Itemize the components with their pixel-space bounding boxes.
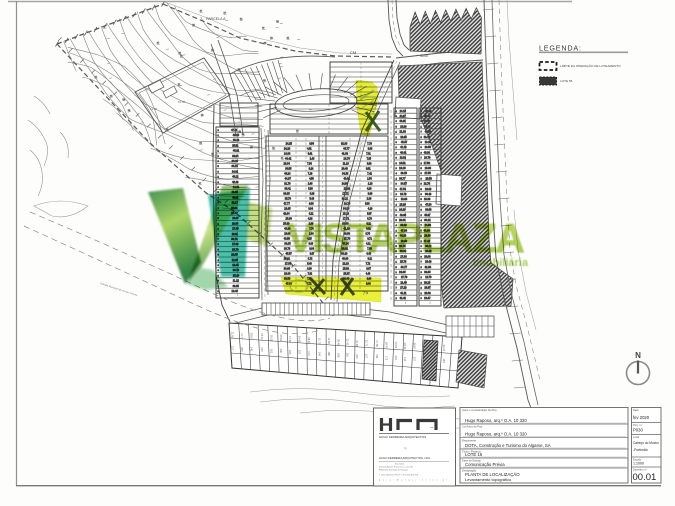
svg-text:45.37: 45.37 (401, 141, 408, 144)
svg-text:13.32: 13.32 (400, 157, 407, 160)
svg-text:1.54: 1.54 (367, 178, 372, 180)
svg-text:188: 188 (327, 351, 331, 356)
svg-text:11.10: 11.10 (343, 162, 350, 165)
svg-text:15.23: 15.23 (233, 139, 240, 142)
svg-text:30.34: 30.34 (442, 344, 446, 351)
svg-text:146: 146 (250, 347, 254, 352)
svg-text:7.54: 7.54 (307, 163, 312, 165)
svg-text:CM: CM (350, 50, 356, 55)
svg-text:27.56: 27.56 (285, 262, 292, 265)
svg-text:8.99: 8.99 (368, 193, 373, 195)
svg-text:44.42: 44.42 (285, 157, 292, 160)
svg-text:11.22: 11.22 (233, 280, 240, 283)
svg-text:15.40: 15.40 (424, 120, 431, 123)
svg-text:36.41: 36.41 (285, 187, 292, 190)
svg-text:36.85: 36.85 (233, 285, 240, 288)
svg-text:24.25: 24.25 (286, 142, 293, 145)
svg-text:205: 205 (240, 347, 244, 352)
svg-text:23.80: 23.80 (401, 198, 408, 201)
svg-text:35.70: 35.70 (285, 197, 292, 200)
svg-text:8.66: 8.66 (309, 203, 314, 205)
svg-text:14.98: 14.98 (284, 152, 291, 155)
svg-text:46.31: 46.31 (233, 150, 240, 153)
svg-text:Requerente: Requerente (462, 438, 477, 442)
svg-text:Levantamento topográfico: Levantamento topográfico (465, 477, 512, 482)
svg-text:Proj. n.º: Proj. n.º (633, 423, 642, 427)
svg-text:140: 140 (318, 352, 322, 357)
svg-text:24.42: 24.42 (298, 336, 302, 343)
svg-text:7.85: 7.85 (367, 158, 372, 160)
svg-text:3.69: 3.69 (367, 163, 372, 165)
svg-text:46.24: 46.24 (284, 172, 291, 175)
svg-text:44.59: 44.59 (425, 131, 432, 134)
svg-text:27.73: 27.73 (401, 276, 408, 279)
svg-text:28.48: 28.48 (336, 339, 340, 346)
svg-text:Autor e Coordenador do Proj.: Autor e Coordenador do Proj. (462, 408, 497, 412)
svg-text:17.59: 17.59 (424, 162, 431, 165)
svg-text:35.97: 35.97 (424, 115, 431, 118)
svg-text:12.79: 12.79 (425, 276, 432, 279)
svg-text:44.87: 44.87 (285, 177, 292, 180)
svg-text:HUGO FERREIRA ARQUITECTOS: HUGO FERREIRA ARQUITECTOS (379, 435, 426, 439)
svg-text:25.58: 25.58 (426, 177, 433, 180)
svg-text:24.86: 24.86 (399, 271, 406, 274)
svg-text:22.10: 22.10 (343, 262, 350, 265)
svg-text:38.69: 38.69 (307, 337, 311, 344)
svg-text:39.87: 39.87 (413, 343, 417, 350)
svg-text:34.57: 34.57 (401, 183, 408, 186)
svg-text:29.10: 29.10 (401, 172, 408, 175)
svg-text:7.31: 7.31 (366, 153, 371, 155)
svg-text:27.53: 27.53 (425, 172, 432, 175)
svg-text:14.05: 14.05 (150, 107, 157, 111)
svg-text:17.72: 17.72 (342, 192, 349, 195)
svg-text:4.19: 4.19 (368, 208, 373, 210)
svg-text:201: 201 (394, 356, 398, 361)
svg-text:19.63: 19.63 (425, 167, 432, 170)
svg-text:46.12: 46.12 (232, 176, 239, 179)
svg-text:18.11: 18.11 (403, 343, 407, 350)
svg-text:8.67: 8.67 (366, 268, 371, 270)
svg-text:35.16: 35.16 (232, 165, 239, 168)
svg-text:28.97: 28.97 (250, 333, 254, 340)
svg-text:LIMITE DA OPERAÇÃO DE LOTEAMEN: LIMITE DA OPERAÇÃO DE LOTEAMENTO (560, 63, 621, 68)
svg-text:36.77: 36.77 (399, 177, 406, 180)
svg-text:150: 150 (355, 354, 359, 359)
svg-text:5.83: 5.83 (365, 203, 370, 205)
svg-text:00.01: 00.01 (633, 472, 657, 483)
svg-text:PLANTA DE LOCALIZAÇÃO: PLANTA DE LOCALIZAÇÃO (465, 472, 520, 477)
svg-text:34.35: 34.35 (342, 172, 349, 175)
svg-text:34.50: 34.50 (343, 207, 350, 210)
svg-text:44.77: 44.77 (343, 147, 350, 150)
svg-text:27.23: 27.23 (400, 287, 407, 290)
svg-text:Hugo Raposo, arq.º O.A. 10 320: Hugo Raposo, arq.º O.A. 10 320 (465, 418, 527, 423)
svg-text:Co-Autor do Proj.: Co-Autor do Proj. (462, 425, 483, 429)
svg-text:26.48: 26.48 (342, 167, 349, 170)
svg-text:12.66: 12.66 (327, 337, 331, 344)
svg-text:18.08: 18.08 (425, 188, 432, 191)
svg-text:42.33: 42.33 (232, 181, 239, 184)
svg-text:7.72: 7.72 (366, 263, 371, 265)
svg-text:22.76: 22.76 (424, 183, 431, 186)
svg-text:21.38: 21.38 (400, 131, 407, 134)
svg-text:Cabeço do Mocho: Cabeço do Mocho (633, 441, 659, 445)
svg-text:25.84: 25.84 (279, 335, 283, 342)
svg-text:PARCELA A: PARCELA A (206, 17, 226, 21)
svg-text:173: 173 (307, 351, 311, 356)
svg-text:-Portimão: -Portimão (633, 448, 648, 452)
svg-text:3.88: 3.88 (310, 193, 315, 195)
svg-text:164: 164 (442, 358, 446, 363)
svg-text:22.71: 22.71 (365, 340, 369, 347)
svg-text:31.41: 31.41 (400, 297, 407, 300)
svg-text:P030: P030 (633, 428, 643, 433)
svg-text:VISTAPLAZA: VISTAPLAZA (287, 215, 524, 261)
svg-text:17.77: 17.77 (240, 333, 244, 340)
svg-text:16.24: 16.24 (400, 125, 407, 128)
svg-text:43.46: 43.46 (424, 136, 431, 139)
svg-text:32.38: 32.38 (341, 142, 348, 145)
svg-text:15.60: 15.60 (178, 100, 185, 104)
svg-text:16.97: 16.97 (424, 287, 431, 290)
svg-text:48.30: 48.30 (424, 151, 431, 154)
svg-text:10.70: 10.70 (424, 157, 431, 160)
svg-text:19.90: 19.90 (284, 272, 291, 275)
svg-text:9.61: 9.61 (308, 153, 313, 155)
svg-text:44.97: 44.97 (400, 115, 407, 118)
svg-text:14.01: 14.01 (232, 170, 239, 173)
svg-text:Estrada Monte Francisco, Lt 14: Estrada Monte Francisco, Lt 14 3B (379, 466, 413, 469)
svg-text:8.54: 8.54 (309, 143, 314, 145)
svg-text:7.78: 7.78 (367, 143, 372, 145)
svg-text:32.42: 32.42 (346, 339, 350, 346)
svg-text:15.76: 15.76 (400, 261, 407, 264)
svg-text:165: 165 (288, 350, 292, 355)
svg-text:102: 102 (298, 350, 302, 355)
svg-text:31.79: 31.79 (318, 338, 322, 345)
svg-text:Desenho n.º: Desenho n.º (633, 467, 647, 471)
svg-text:13.78: 13.78 (400, 193, 407, 196)
svg-text:15.37: 15.37 (343, 272, 350, 275)
svg-text:31.79: 31.79 (284, 182, 291, 185)
svg-text:Escritório:: Escritório: (395, 463, 405, 466)
svg-text:LEGENDA:: LEGENDA: (539, 44, 582, 53)
svg-text:15.20: 15.20 (400, 203, 407, 206)
svg-text:30.0E: 30.0E (420, 54, 428, 58)
svg-text:136: 136 (279, 349, 283, 354)
svg-text:Comunicação Prévia: Comunicação Prévia (465, 462, 505, 467)
svg-text:47.77: 47.77 (284, 202, 291, 205)
svg-text:35.65: 35.65 (424, 125, 431, 128)
svg-text:13.19: 13.19 (399, 167, 406, 170)
svg-text:LOTE 16: LOTE 16 (465, 452, 483, 457)
svg-text:LOTE 56: LOTE 56 (560, 79, 573, 83)
svg-text:4.56: 4.56 (309, 178, 314, 180)
svg-text:41.11: 41.11 (400, 292, 407, 295)
svg-text:36.84: 36.84 (232, 155, 239, 158)
svg-text:28.47: 28.47 (384, 342, 388, 349)
svg-text:7.42: 7.42 (367, 173, 372, 175)
svg-text:17.69: 17.69 (288, 336, 292, 343)
svg-text:7.62: 7.62 (308, 273, 313, 275)
svg-text:26.43: 26.43 (425, 261, 432, 264)
svg-text:15.32: 15.32 (260, 333, 264, 340)
svg-text:40.35: 40.35 (399, 120, 406, 123)
svg-text:120: 120 (260, 347, 264, 352)
svg-text:8.51: 8.51 (366, 168, 371, 170)
svg-text:137: 137 (231, 346, 235, 351)
svg-text:5.40: 5.40 (307, 263, 312, 265)
svg-text:14.51: 14.51 (399, 162, 406, 165)
svg-text:4.26: 4.26 (367, 188, 372, 190)
svg-text:216: 216 (346, 353, 350, 358)
svg-text:23.65: 23.65 (284, 207, 291, 210)
svg-text:47.54: 47.54 (400, 188, 407, 191)
svg-text:18.79: 18.79 (344, 157, 351, 160)
svg-text:37.48: 37.48 (355, 340, 359, 347)
svg-text:T +351 282 456 789 | F +351: T +351 282 456 789 | F +351 282 456 780 (379, 475, 419, 477)
svg-text:10.36: 10.36 (424, 198, 431, 201)
svg-text:22.02: 22.02 (344, 187, 351, 190)
svg-text:14.20: 14.20 (399, 209, 406, 212)
svg-text:41.03: 41.03 (342, 152, 349, 155)
svg-text:36.85: 36.85 (283, 192, 290, 195)
svg-text:28.29: 28.29 (424, 281, 431, 284)
svg-text:38.68: 38.68 (425, 209, 432, 212)
svg-text:26.04: 26.04 (284, 162, 291, 165)
svg-text:2.48: 2.48 (308, 183, 313, 185)
svg-text:10.94: 10.94 (394, 342, 398, 349)
svg-text:30.77: 30.77 (401, 266, 408, 269)
svg-text:17.58: 17.58 (375, 340, 379, 347)
svg-text:25.88: 25.88 (343, 267, 350, 270)
svg-text:Imobiliária: Imobiliária (473, 257, 529, 269)
svg-text:208: 208 (336, 353, 340, 358)
svg-text:112: 112 (403, 357, 407, 362)
svg-text:161: 161 (269, 349, 273, 354)
svg-text:Hugo Raposo, arq.º O.A. 10 320: Hugo Raposo, arq.º O.A. 10 320 (465, 432, 527, 437)
svg-text:13.26: 13.26 (425, 141, 432, 144)
svg-text:47.84: 47.84 (425, 203, 432, 206)
svg-text:30.55: 30.55 (285, 167, 292, 170)
svg-text:fev 2020: fev 2020 (633, 415, 650, 420)
svg-text:18.35: 18.35 (400, 136, 407, 139)
svg-text:DOTA, Construção e Turismo do: DOTA, Construção e Turismo do Algarve, S… (465, 443, 551, 448)
svg-text:1:1000: 1:1000 (633, 462, 644, 466)
svg-text:127: 127 (365, 354, 369, 359)
svg-text:29.58: 29.58 (269, 335, 273, 342)
svg-text:29.03: 29.03 (424, 292, 431, 295)
svg-text:24.28: 24.28 (284, 147, 291, 150)
svg-text:16.48: 16.48 (232, 290, 239, 293)
svg-text:8.38: 8.38 (368, 148, 373, 150)
svg-text:36.43: 36.43 (425, 193, 432, 196)
svg-text:1.13: 1.13 (368, 183, 373, 185)
svg-text:175: 175 (384, 356, 388, 361)
svg-text:4.49: 4.49 (366, 273, 371, 275)
svg-text:Data: Data (633, 408, 639, 412)
svg-text:41.13: 41.13 (400, 146, 407, 149)
svg-text:2.30: 2.30 (367, 198, 372, 200)
svg-text:21.60: 21.60 (401, 281, 408, 284)
svg-text:28.56: 28.56 (425, 146, 432, 149)
svg-text:24.15: 24.15 (400, 110, 407, 113)
svg-text:2.43: 2.43 (310, 158, 315, 160)
svg-text:47.61: 47.61 (231, 129, 238, 132)
svg-text:5.80: 5.80 (308, 188, 313, 190)
svg-text:191: 191 (375, 354, 379, 359)
svg-text:4.61: 4.61 (307, 148, 312, 150)
svg-text:13.37: 13.37 (424, 297, 431, 300)
svg-text:33.21: 33.21 (342, 197, 349, 200)
svg-text:9.24: 9.24 (309, 168, 314, 170)
svg-text:31.86: 31.86 (425, 266, 432, 269)
svg-text:3.39: 3.39 (307, 268, 312, 270)
svg-text:40.61: 40.61 (400, 151, 407, 154)
svg-text:8500-000 Portimão | Portugal: 8500-000 Portimão | Portugal (379, 469, 408, 472)
svg-text:N: N (635, 351, 641, 360)
svg-text:31.52: 31.52 (425, 110, 432, 113)
svg-text:21.65: 21.65 (231, 332, 235, 339)
svg-text:16.74: 16.74 (344, 202, 351, 205)
svg-text:Local: Local (633, 435, 640, 439)
svg-text:30.80: 30.80 (424, 271, 431, 274)
svg-text:26.26: 26.26 (232, 160, 239, 163)
svg-text:5.46: 5.46 (310, 198, 315, 200)
svg-text:g e r a l @ a r q u i t e c t: g e r a l @ a r q u i t e c t o s . p t (379, 479, 448, 482)
svg-text:30.69: 30.69 (284, 267, 291, 270)
svg-text:3.94: 3.94 (308, 208, 313, 210)
svg-text:227: 227 (413, 357, 417, 362)
svg-text:7.10: 7.10 (308, 173, 313, 175)
svg-text:25.51: 25.51 (232, 144, 239, 147)
svg-text:HUGO FERREIRA ARQUITECTOS, LDA: HUGO FERREIRA ARQUITECTOS, LDA. (379, 456, 431, 460)
